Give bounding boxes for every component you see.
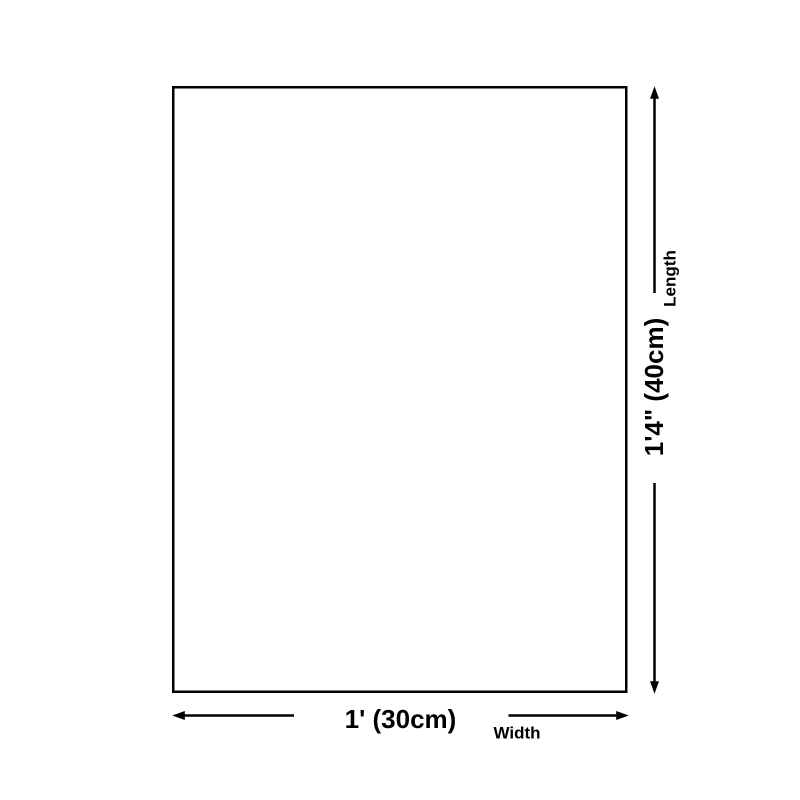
svg-text:Length: Length [661, 250, 680, 307]
svg-text:1' (30cm): 1' (30cm) [345, 704, 457, 734]
svg-text:1'4" (40cm): 1'4" (40cm) [639, 318, 669, 456]
svg-text:Width: Width [494, 724, 541, 743]
